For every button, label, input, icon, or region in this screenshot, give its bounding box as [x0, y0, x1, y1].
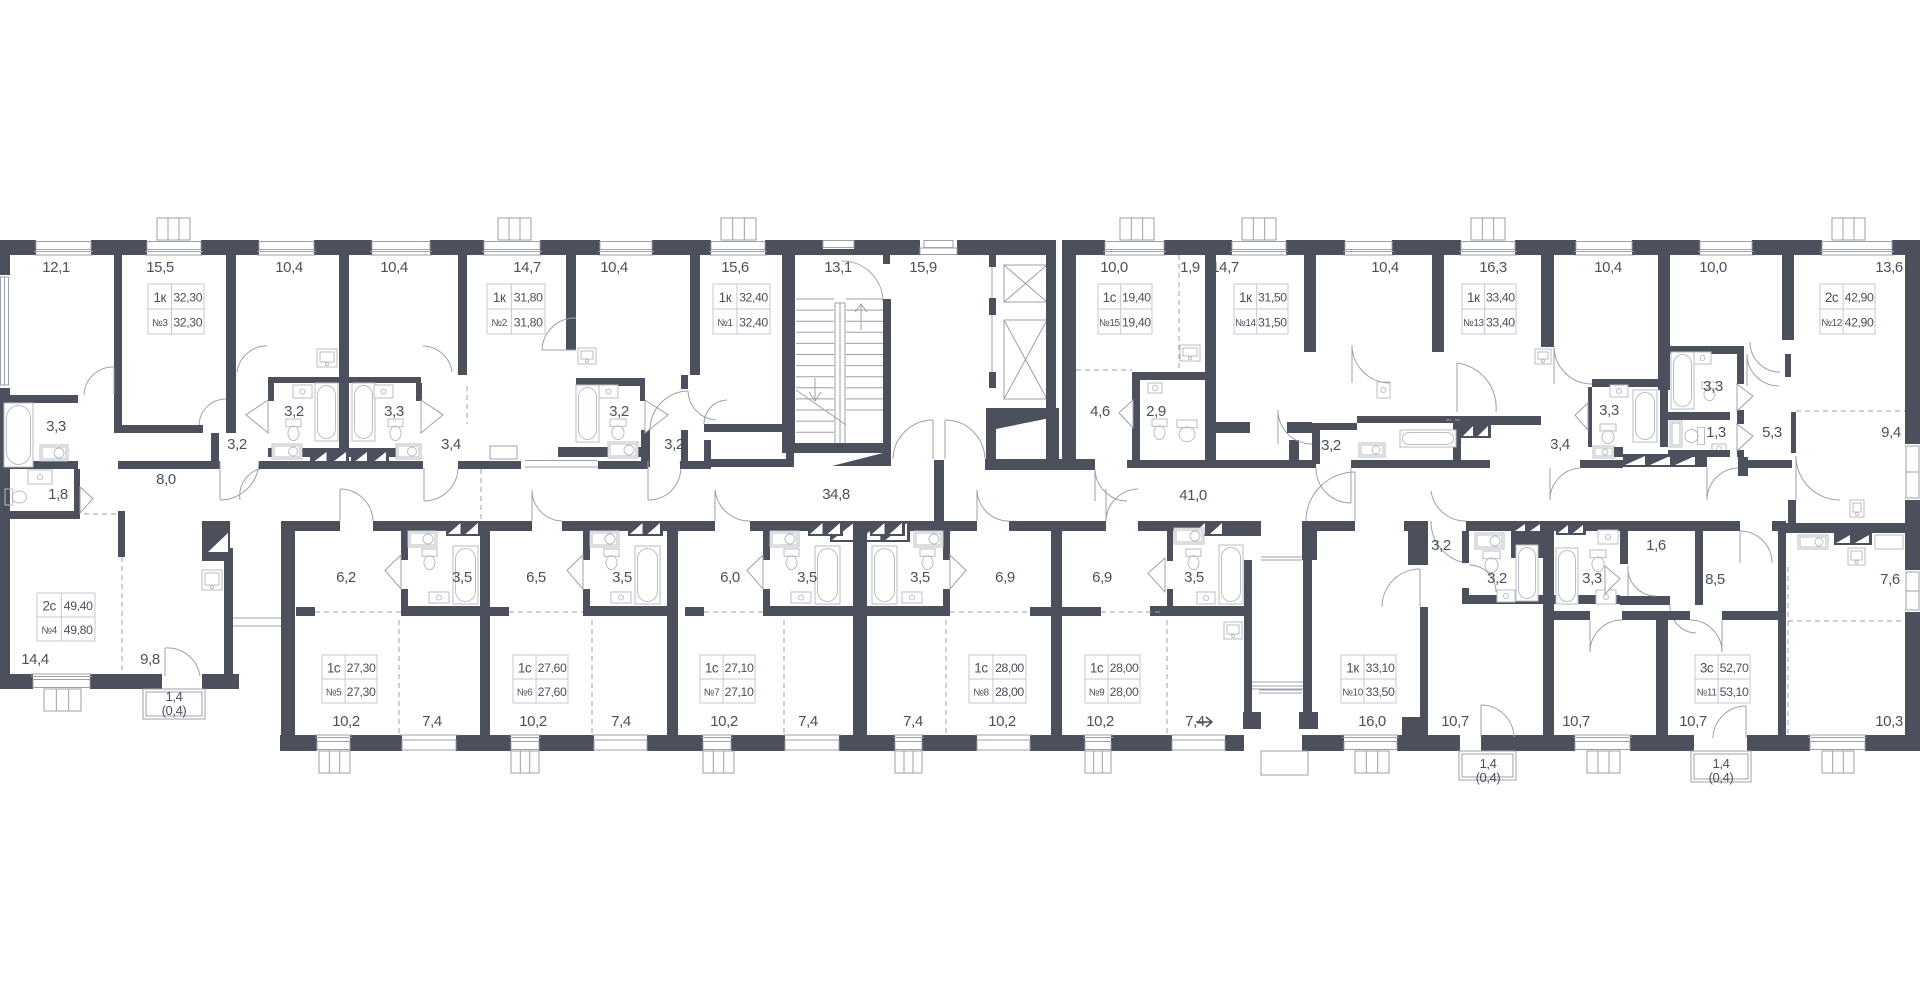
svg-text:28,00: 28,00 — [1110, 661, 1139, 675]
svg-text:31,80: 31,80 — [514, 291, 543, 305]
svg-text:№12: №12 — [1821, 318, 1842, 329]
svg-text:1к: 1к — [1467, 290, 1480, 305]
svg-text:2,9: 2,9 — [1146, 403, 1166, 420]
svg-text:7,4: 7,4 — [611, 713, 631, 730]
svg-text:9,4: 9,4 — [1881, 424, 1901, 441]
svg-text:3,5: 3,5 — [1184, 569, 1204, 586]
svg-text:10,2: 10,2 — [519, 713, 547, 730]
svg-text:№9: №9 — [1089, 688, 1105, 699]
svg-text:27,60: 27,60 — [538, 661, 567, 675]
svg-text:31,80: 31,80 — [514, 316, 543, 330]
svg-text:10,0: 10,0 — [1699, 259, 1727, 276]
svg-text:№5: №5 — [326, 688, 342, 699]
svg-text:3,2: 3,2 — [1321, 437, 1341, 454]
svg-text:42,90: 42,90 — [1845, 291, 1874, 305]
svg-text:13,1: 13,1 — [824, 259, 852, 276]
svg-text:10,3: 10,3 — [1875, 713, 1903, 730]
svg-text:3,5: 3,5 — [612, 569, 632, 586]
svg-text:3,2: 3,2 — [1487, 570, 1507, 587]
svg-text:3,2: 3,2 — [1431, 537, 1451, 554]
svg-text:1к: 1к — [493, 290, 506, 305]
svg-text:14,4: 14,4 — [21, 651, 49, 668]
svg-text:№8: №8 — [973, 688, 989, 699]
svg-text:10,7: 10,7 — [1562, 713, 1590, 730]
svg-text:3,3: 3,3 — [1582, 570, 1602, 587]
svg-text:3,3: 3,3 — [46, 418, 66, 435]
svg-text:10,4: 10,4 — [380, 259, 408, 276]
svg-text:№4: №4 — [41, 626, 57, 637]
svg-text:33,50: 33,50 — [1366, 685, 1395, 699]
svg-text:6,9: 6,9 — [1092, 569, 1112, 586]
svg-text:16,0: 16,0 — [1358, 713, 1386, 730]
svg-text:32,40: 32,40 — [739, 291, 768, 305]
svg-text:15,5: 15,5 — [146, 259, 174, 276]
svg-text:1с: 1с — [1090, 661, 1104, 676]
svg-text:1,6: 1,6 — [1646, 537, 1666, 554]
svg-text:27,10: 27,10 — [725, 661, 754, 675]
svg-text:13,6: 13,6 — [1875, 259, 1903, 276]
svg-text:5,3: 5,3 — [1762, 424, 1782, 441]
svg-text:19,40: 19,40 — [1122, 291, 1151, 305]
svg-text:1с: 1с — [518, 661, 532, 676]
svg-text:3,2: 3,2 — [284, 403, 304, 420]
svg-text:2с: 2с — [42, 599, 56, 614]
svg-text:1с: 1с — [1103, 290, 1117, 305]
svg-text:(0,4): (0,4) — [1709, 770, 1734, 785]
svg-text:1к: 1к — [719, 290, 732, 305]
svg-text:3,4: 3,4 — [441, 436, 461, 453]
svg-text:6,2: 6,2 — [336, 569, 356, 586]
svg-text:14,7: 14,7 — [513, 259, 541, 276]
svg-text:№3: №3 — [152, 318, 168, 329]
svg-text:10,4: 10,4 — [1594, 259, 1622, 276]
svg-text:6,0: 6,0 — [720, 569, 740, 586]
svg-text:28,00: 28,00 — [995, 685, 1024, 699]
svg-text:10,2: 10,2 — [332, 713, 360, 730]
svg-text:1к: 1к — [153, 290, 166, 305]
svg-text:(0,4): (0,4) — [162, 703, 187, 718]
svg-text:8,0: 8,0 — [156, 471, 176, 488]
svg-text:3,2: 3,2 — [609, 403, 629, 420]
svg-text:12,1: 12,1 — [42, 259, 70, 276]
svg-text:52,70: 52,70 — [1720, 661, 1749, 675]
svg-text:1с: 1с — [327, 661, 341, 676]
svg-text:10,2: 10,2 — [1086, 713, 1114, 730]
svg-text:1,8: 1,8 — [48, 486, 68, 503]
svg-text:1,4: 1,4 — [166, 689, 183, 704]
svg-text:9,8: 9,8 — [140, 651, 160, 668]
svg-text:19,40: 19,40 — [1122, 316, 1151, 330]
svg-text:14,7: 14,7 — [1211, 259, 1239, 276]
svg-text:53,10: 53,10 — [1720, 685, 1749, 699]
svg-text:1,9: 1,9 — [1180, 259, 1200, 276]
svg-text:10,2: 10,2 — [710, 713, 738, 730]
svg-text:33,40: 33,40 — [1486, 316, 1515, 330]
svg-text:№13: №13 — [1463, 318, 1484, 329]
svg-text:1к: 1к — [1239, 290, 1252, 305]
svg-text:3,3: 3,3 — [1703, 378, 1723, 395]
svg-text:1,3: 1,3 — [1706, 424, 1726, 441]
svg-text:31,50: 31,50 — [1258, 316, 1287, 330]
svg-text:1,4: 1,4 — [1480, 756, 1497, 771]
svg-text:34,8: 34,8 — [822, 486, 850, 503]
svg-text:10,2: 10,2 — [988, 713, 1016, 730]
svg-text:6,5: 6,5 — [526, 569, 546, 586]
svg-text:7,4: 7,4 — [903, 713, 923, 730]
svg-text:7,4: 7,4 — [422, 713, 442, 730]
svg-text:28,00: 28,00 — [995, 661, 1024, 675]
svg-text:1,4: 1,4 — [1713, 756, 1730, 771]
svg-text:10,4: 10,4 — [600, 259, 628, 276]
svg-text:№10: №10 — [1342, 688, 1363, 699]
svg-text:4,6: 4,6 — [1090, 403, 1110, 420]
svg-text:32,40: 32,40 — [739, 316, 768, 330]
svg-text:3,5: 3,5 — [452, 569, 472, 586]
svg-text:7,4: 7,4 — [798, 713, 818, 730]
svg-text:(0,4): (0,4) — [1476, 770, 1501, 785]
svg-text:3,2: 3,2 — [664, 436, 684, 453]
svg-text:3,2: 3,2 — [227, 436, 247, 453]
svg-text:32,30: 32,30 — [173, 316, 202, 330]
svg-text:10,4: 10,4 — [1371, 259, 1399, 276]
svg-text:7,6: 7,6 — [1880, 571, 1900, 588]
svg-text:42,90: 42,90 — [1845, 316, 1874, 330]
svg-text:49,80: 49,80 — [64, 623, 93, 637]
svg-text:33,10: 33,10 — [1366, 661, 1395, 675]
svg-text:15,6: 15,6 — [721, 259, 749, 276]
svg-text:6,9: 6,9 — [995, 569, 1015, 586]
svg-text:31,50: 31,50 — [1258, 291, 1287, 305]
svg-text:16,3: 16,3 — [1479, 259, 1507, 276]
svg-text:27,10: 27,10 — [725, 685, 754, 699]
svg-text:3с: 3с — [1700, 661, 1714, 676]
svg-text:№14: №14 — [1235, 318, 1256, 329]
svg-text:33,40: 33,40 — [1486, 291, 1515, 305]
svg-text:49,40: 49,40 — [64, 599, 93, 613]
svg-text:10,7: 10,7 — [1441, 713, 1469, 730]
svg-text:№11: №11 — [1697, 688, 1718, 699]
svg-text:№7: №7 — [704, 688, 720, 699]
svg-text:10,7: 10,7 — [1679, 713, 1707, 730]
svg-text:8,5: 8,5 — [1705, 571, 1725, 588]
svg-text:3,5: 3,5 — [797, 569, 817, 586]
svg-text:№6: №6 — [517, 688, 533, 699]
svg-text:1с: 1с — [974, 661, 988, 676]
svg-text:27,30: 27,30 — [347, 661, 376, 675]
svg-text:27,60: 27,60 — [538, 685, 567, 699]
svg-text:3,5: 3,5 — [910, 569, 930, 586]
svg-text:15,9: 15,9 — [909, 259, 937, 276]
svg-text:41,0: 41,0 — [1179, 487, 1207, 504]
svg-text:3,3: 3,3 — [384, 403, 404, 420]
svg-text:2с: 2с — [1825, 290, 1839, 305]
svg-text:3,4: 3,4 — [1550, 436, 1570, 453]
svg-text:10,0: 10,0 — [1100, 259, 1128, 276]
svg-text:1к: 1к — [1346, 661, 1359, 676]
svg-text:№1: №1 — [717, 318, 733, 329]
svg-text:28,00: 28,00 — [1110, 685, 1139, 699]
svg-text:№2: №2 — [491, 318, 507, 329]
svg-text:7,4: 7,4 — [1185, 713, 1205, 730]
svg-text:27,30: 27,30 — [347, 685, 376, 699]
svg-text:32,30: 32,30 — [173, 291, 202, 305]
svg-text:10,4: 10,4 — [275, 259, 303, 276]
svg-text:1с: 1с — [705, 661, 719, 676]
svg-text:3,3: 3,3 — [1599, 402, 1619, 419]
svg-text:№15: №15 — [1099, 318, 1120, 329]
